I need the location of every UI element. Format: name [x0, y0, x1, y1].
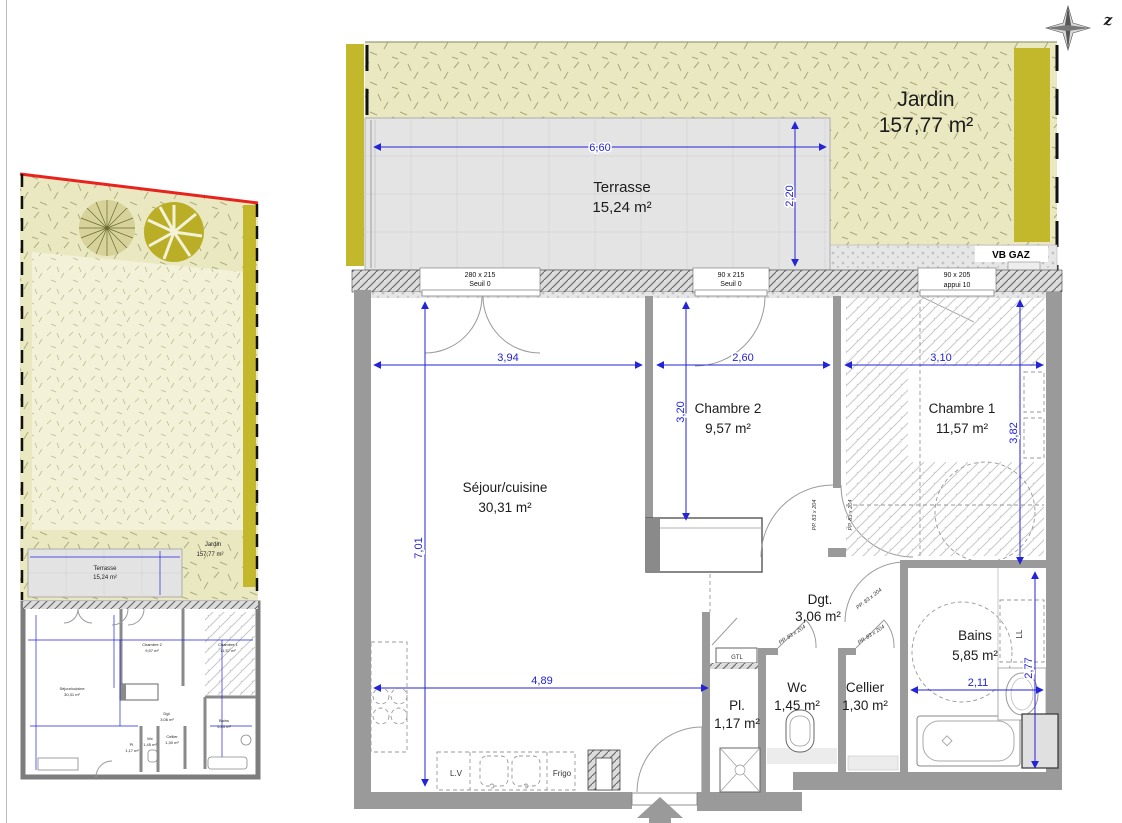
mini-chambre1-area: 11,57 m² [220, 648, 236, 653]
mini-terrace [28, 549, 182, 597]
dim-sejour-width-label: 3,94 [497, 352, 518, 364]
wall-chambre2-chambre1 [833, 296, 841, 488]
mini-terrasse-area: 15,24 m² [93, 575, 117, 581]
dim-bains-width-label: 2,11 [968, 677, 989, 689]
mini-jardin-area: 157,77 m² [196, 552, 223, 558]
dim-chambre1-width-label: 3,10 [930, 352, 951, 364]
dishwasher-label: L.V [450, 769, 463, 778]
chambre1-name: Chambre 1 [929, 401, 996, 416]
exterior-wall-bottom-right [793, 772, 1062, 790]
mini-sejour-area: 30,31 m² [64, 692, 80, 697]
compass-north-label: z [1103, 11, 1113, 29]
dim-chambre1-height-label: 3,82 [1008, 422, 1020, 443]
mini-wc-area: 1,45 m² [143, 742, 157, 747]
mini-wc-name: Wc [147, 736, 153, 741]
window-chambre1-size: 90 x 205 [944, 272, 971, 279]
pl-water-heater [720, 748, 760, 792]
jardin-area: 157,77 m² [879, 114, 974, 137]
pl-area: 1,17 m² [714, 716, 760, 731]
window-chambre1-note: appui 10 [944, 282, 971, 289]
kitchen-duct [588, 750, 620, 790]
window-terrace-large-note: Seuil 0 [469, 281, 491, 288]
cellier-floor-strip [848, 756, 898, 770]
mini-chambre2-area: 9,57 m² [145, 648, 159, 653]
wall-post-hall [828, 548, 846, 557]
mini-site-plan: Terrasse 15,24 m² Jardin 157,77 m² [20, 174, 258, 777]
mini-bains-name: Bains [219, 718, 229, 723]
hedge-strip-left [346, 44, 364, 266]
dim-sejour-bottom-label: 4,89 [531, 675, 552, 687]
dim-bains-height-label: 2,77 [1023, 657, 1035, 678]
mini-sejour-name: Séjour/cuisine [59, 686, 85, 691]
dim-terrasse-width-label: 6,60 [589, 142, 610, 154]
exterior-wall-bottom-left [354, 792, 632, 809]
vb-gaz-label: VB GAZ [992, 250, 1030, 261]
mini-dgt-area: 3,06 m² [160, 717, 174, 722]
sejour-area: 30,31 m² [478, 500, 532, 515]
mini-cellier-name: Cellier [166, 734, 178, 739]
washing-machine-label: LL [1015, 629, 1024, 638]
window-terrace-large: 280 x 215 Seuil 0 [420, 268, 540, 296]
window-chambre2-note: Seuil 0 [720, 281, 742, 288]
exterior-wall-left [354, 290, 371, 792]
window-chambre1: 90 x 205 appui 10 [918, 268, 996, 296]
mini-apartment: Séjour/cuisine 30,31 m² Chambre 2 9,57 m… [23, 601, 258, 777]
mini-tree-lobed [144, 202, 204, 262]
dgt-area: 3,06 m² [795, 609, 841, 624]
terrasse-area: 15,24 m² [592, 199, 651, 216]
pl-name: Pl. [729, 698, 745, 713]
wall-sejour-chambre2 [645, 296, 653, 518]
bains-duct [1022, 714, 1058, 768]
dim-chambre2-height-label: 3,20 [675, 401, 687, 422]
terrasse-name: Terrasse [593, 179, 651, 196]
bathtub [917, 716, 1020, 766]
mini-garden-inner-texture [32, 252, 245, 530]
mini-bains-area: 5,85 m² [217, 724, 231, 729]
gtl-hatch-wall [710, 663, 758, 669]
mini-terrasse-name: Terrasse [93, 566, 117, 572]
wc-name: Wc [787, 680, 807, 695]
mini-tree-radial [79, 200, 135, 256]
mini-pl-name: Pl. [130, 742, 135, 747]
wall-stub-cellier-left [846, 648, 856, 655]
wall-sejour-pl [702, 612, 710, 792]
jardin-name: Jardin [897, 88, 954, 111]
dim-chambre2-width-label: 2,60 [732, 352, 753, 364]
exterior-wall-bottom-entry-stub [697, 792, 802, 811]
mini-chambre1-name: Chambre 1 [218, 642, 239, 647]
mini-cellier-area: 1,30 m² [165, 740, 179, 745]
window-terrace-large-size: 280 x 215 [465, 272, 496, 279]
bains-name: Bains [958, 628, 992, 643]
mini-chambre2-name: Chambre 2 [142, 642, 163, 647]
dim-sejour-height-label: 7,01 [413, 537, 425, 558]
mini-dgt-name: Dgt. [163, 711, 170, 716]
sejour-name: Séjour/cuisine [463, 480, 548, 495]
hedge-strip-right [1014, 48, 1050, 242]
washbasin [998, 668, 1046, 720]
chambre2-name: Chambre 2 [695, 401, 762, 416]
cellier-name: Cellier [846, 680, 885, 695]
wall-chambre1-bains [900, 560, 1046, 568]
wall-cellier-bains [900, 560, 908, 772]
wall-stub-wc-left [766, 648, 778, 655]
door-label-chambre2: PP. 83 x 204 [812, 500, 818, 531]
dim-terrasse-depth-label: 2,20 [784, 185, 796, 206]
chambre2-area: 9,57 m² [705, 421, 751, 436]
bains-area: 5,85 m² [952, 648, 998, 663]
gtl-label: GTL [731, 655, 743, 661]
wc-area: 1,45 m² [774, 698, 820, 713]
main-plan: Jardin 157,77 m² VB GAZ z Terrasse 15,2 [346, 6, 1113, 823]
floor-plan-canvas: Terrasse 15,24 m² Jardin 157,77 m² [0, 0, 1122, 823]
fridge-label: Frigo [553, 769, 572, 778]
mini-pl-area: 1,17 m² [125, 748, 139, 753]
window-chambre2-size: 90 x 215 [718, 272, 745, 279]
chambre1-area: 11,57 m² [936, 421, 989, 436]
dgt-name: Dgt. [808, 592, 833, 607]
cellier-area: 1,30 m² [842, 698, 888, 713]
window-chambre2: 90 x 215 Seuil 0 [693, 268, 769, 296]
mini-hedge-strip [243, 205, 256, 587]
mini-jardin-name: Jardin [205, 542, 221, 548]
